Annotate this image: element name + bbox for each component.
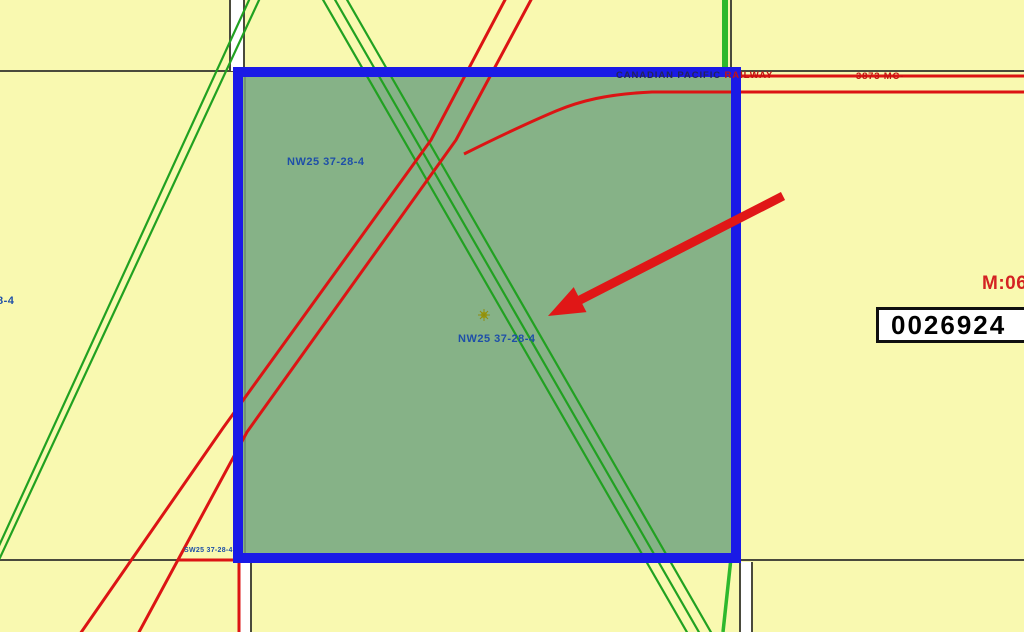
map-viewport: { "map": { "labels": { "parcel_top": "NW… [0, 0, 1024, 632]
parcel-label-center: NW25 37-28-4 [458, 333, 536, 345]
left-edge-label: 8-4 [0, 295, 14, 307]
parcel-id-box: 0026924 [876, 307, 1024, 343]
map-canvas[interactable] [0, 0, 1024, 632]
corner-parcel-label: SW25 37-28-4 [184, 547, 233, 554]
railway-label: CANADIAN PACIFIC RAILWAY [616, 70, 773, 81]
road-allowance-bottom-right [741, 562, 751, 632]
railway-label-prefix: CANADIAN PACIFIC [616, 70, 721, 81]
railway-label-suffix: RAILWAY [725, 70, 774, 81]
road-allowance-bottom-left [240, 562, 251, 632]
meridian-label: M:06 [982, 273, 1024, 295]
parcel-label-top: NW25 37-28-4 [287, 156, 365, 168]
parcel-id-value: 0026924 [891, 310, 1006, 341]
railway-mileage-label: 3873 MC- [856, 71, 904, 82]
